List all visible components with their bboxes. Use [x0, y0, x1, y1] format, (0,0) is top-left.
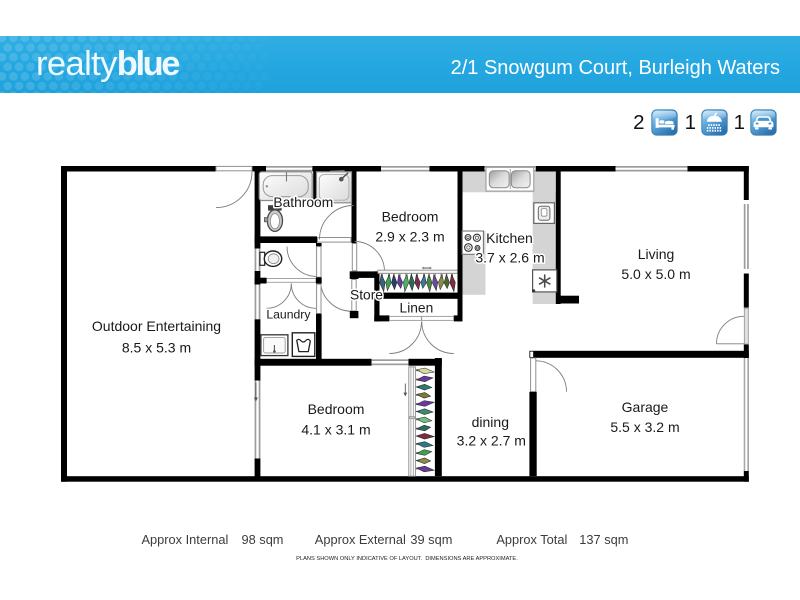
svg-text:2.9 x 2.3 m: 2.9 x 2.3 m [375, 228, 444, 244]
svg-text:Linen: Linen [400, 300, 434, 315]
svg-text:5.0 x 5.0 m: 5.0 x 5.0 m [621, 266, 690, 282]
svg-text:8.5 x 5.3 m: 8.5 x 5.3 m [122, 339, 191, 355]
svg-text:3.2 x 2.7 m: 3.2 x 2.7 m [457, 433, 526, 449]
svg-text:Store: Store [350, 288, 383, 303]
svg-text:Bathroom: Bathroom [273, 195, 333, 210]
svg-text:Kitchen: Kitchen [486, 230, 533, 246]
svg-text:Garage: Garage [622, 399, 669, 415]
svg-text:3.7 x 2.6 m: 3.7 x 2.6 m [475, 249, 544, 265]
svg-text:Bedroom: Bedroom [382, 208, 439, 224]
svg-text:Bedroom: Bedroom [308, 401, 365, 417]
svg-text:5.5 x 3.2 m: 5.5 x 3.2 m [610, 419, 679, 435]
svg-text:dining: dining [472, 414, 509, 430]
svg-text:Living: Living [638, 246, 675, 262]
svg-text:4.1 x 3.1 m: 4.1 x 3.1 m [301, 422, 370, 438]
svg-text:Outdoor Entertaining: Outdoor Entertaining [92, 318, 221, 334]
svg-text:Laundry: Laundry [266, 308, 311, 322]
